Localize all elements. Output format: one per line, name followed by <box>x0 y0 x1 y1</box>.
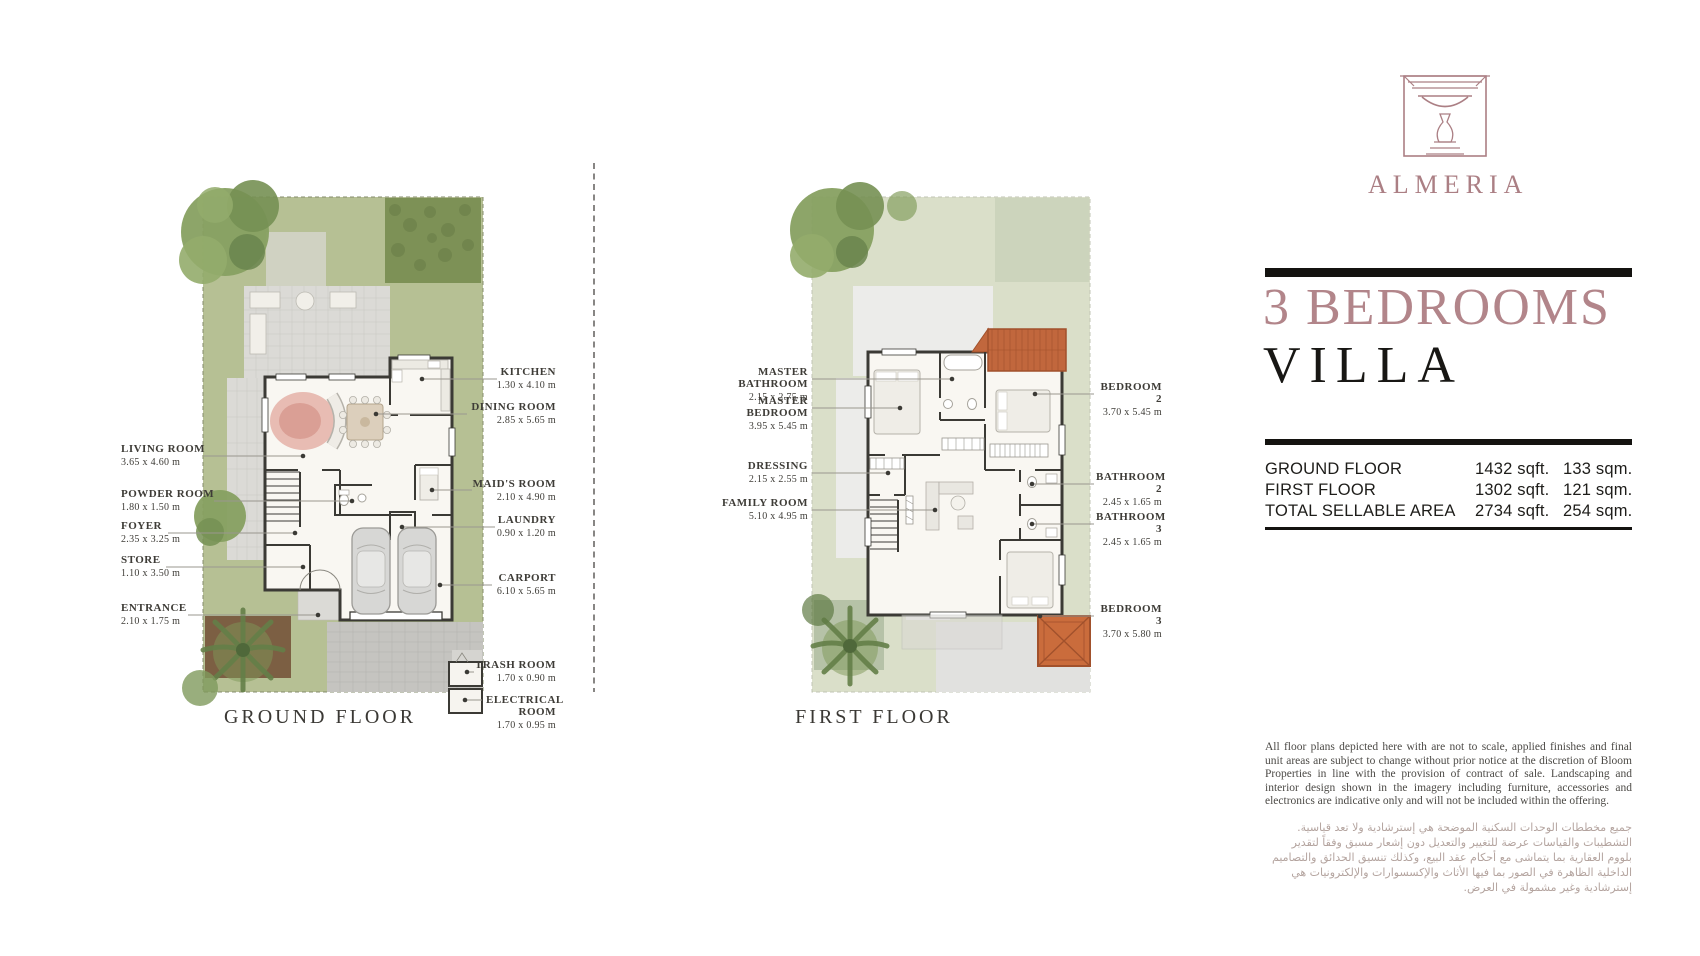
room-label-carport: CARPORT 6.10 x 5.65 m <box>456 572 556 597</box>
row-sqft: 2734 sqft. <box>1475 502 1563 521</box>
row-sqm: 133 sqm. <box>1563 460 1633 479</box>
room-label-dressing: DRESSING 2.15 x 2.55 m <box>694 460 808 485</box>
room-label-electrical-room: ELECTRICAL ROOM 1.70 x 0.95 m <box>486 694 556 731</box>
ground-floor-caption: GROUND FLOOR <box>220 706 420 729</box>
room-label-master-bedroom: MASTER BEDROOM 3.95 x 5.45 m <box>694 395 808 432</box>
row-label: TOTAL SELLABLE AREA <box>1265 502 1470 521</box>
table-row-ground-floor: GROUND FLOOR 1432 sqft. 133 sqm. <box>1265 460 1632 480</box>
room-label-family-room: FAMILY ROOM 5.10 x 4.95 m <box>694 497 808 522</box>
table-row-first-floor: FIRST FLOOR 1302 sqft. 121 sqm. <box>1265 481 1632 501</box>
room-label-store: STORE 1.10 x 3.50 m <box>121 554 233 579</box>
heading-villa: VILLA <box>1263 340 1464 392</box>
disclaimer-english: All floor plans depicted here with are n… <box>1265 741 1632 809</box>
room-label-living-room: LIVING ROOM 3.65 x 4.60 m <box>121 443 233 468</box>
brochure-page: { "brand": { "name": "ALMERIA", "logo_ic… <box>0 0 1700 956</box>
row-sqft: 1432 sqft. <box>1475 460 1563 479</box>
room-label-maids-room: MAID'S ROOM 2.10 x 4.90 m <box>456 478 556 503</box>
table-bottom-rule <box>1265 527 1632 530</box>
heading-bedrooms: 3 BEDROOMS <box>1263 282 1611 334</box>
room-label-bathroom-2: BATHROOM 2 2.45 x 1.65 m <box>1096 471 1162 508</box>
room-label-kitchen: KITCHEN 1.30 x 4.10 m <box>456 366 556 391</box>
room-label-bathroom-3: BATHROOM 3 2.45 x 1.65 m <box>1096 511 1162 548</box>
disclaimer-arabic: جميع مخططات الوحدات السكنية الموضحة هي إ… <box>1265 820 1632 895</box>
room-label-bedroom-2: BEDROOM 2 3.70 x 5.45 m <box>1096 381 1162 418</box>
table-top-rule <box>1265 439 1632 445</box>
room-label-foyer: FOYER 2.35 x 3.25 m <box>121 520 233 545</box>
row-label: FIRST FLOOR <box>1265 481 1470 500</box>
table-row-total: TOTAL SELLABLE AREA 2734 sqft. 254 sqm. <box>1265 502 1632 522</box>
room-label-powder-room: POWDER ROOM 1.80 x 1.50 m <box>121 488 233 513</box>
room-label-trash-room: TRASH ROOM 1.70 x 0.90 m <box>460 659 556 684</box>
brand-name: ALMERIA <box>1368 170 1528 200</box>
first-floor-caption: FIRST FLOOR <box>774 706 974 729</box>
row-sqm: 254 sqm. <box>1563 502 1633 521</box>
row-label: GROUND FLOOR <box>1265 460 1470 479</box>
row-sqft: 1302 sqft. <box>1475 481 1563 500</box>
fountain-icon <box>1398 66 1492 162</box>
room-label-dining-room: DINING ROOM 2.85 x 5.65 m <box>456 401 556 426</box>
room-label-entrance: ENTRANCE 2.10 x 1.75 m <box>121 602 233 627</box>
row-sqm: 121 sqm. <box>1563 481 1633 500</box>
room-label-bedroom-3: BEDROOM 3 3.70 x 5.80 m <box>1096 603 1162 640</box>
heading-top-bar <box>1265 268 1632 277</box>
room-label-laundry: LAUNDRY 0.90 x 1.20 m <box>456 514 556 539</box>
